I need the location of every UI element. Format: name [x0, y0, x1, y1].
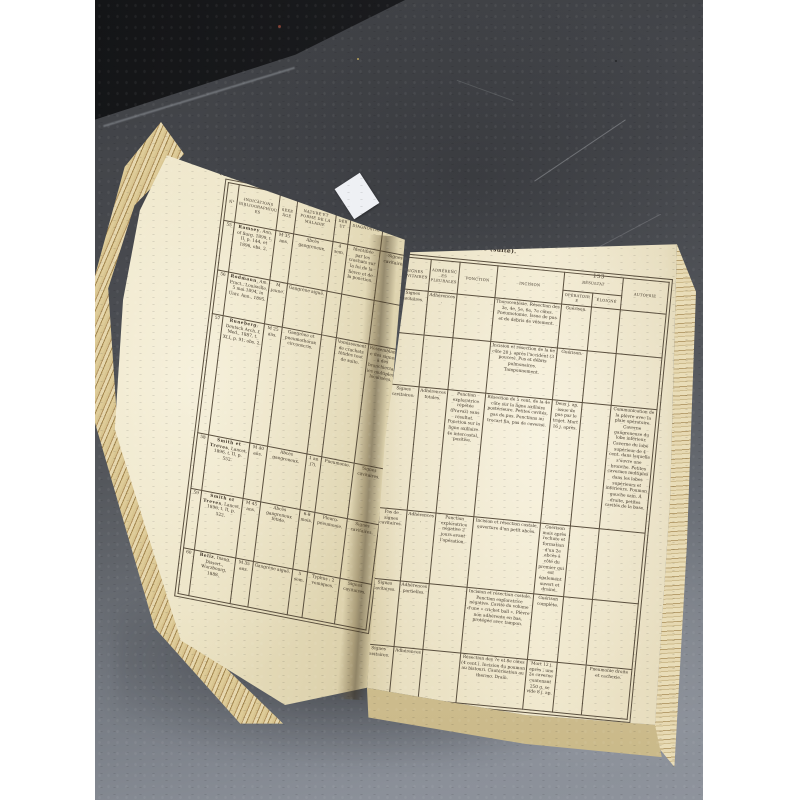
left-cell-biblio: Beliz, Inaug. Dissert., Wurzbourg, 1888.	[189, 550, 236, 604]
floor-speck	[615, 60, 617, 62]
right-cell-incision: Résection de 5 cent. de la 4e côte sur l…	[474, 393, 553, 523]
right-cell-incision: Résection des 7e et 8e côtes (4 cent.). …	[456, 653, 528, 709]
right-col-header: Adhérences pleurales	[428, 259, 461, 294]
floor-speck	[278, 25, 281, 28]
left-cell-biblio: Rodmann, Am. Pract., Louisville, 5 mai 1…	[224, 272, 271, 324]
right-page-title: Gangrène pulmonaire (suite).	[408, 238, 517, 255]
right-cell-autopsie	[611, 354, 662, 410]
right-cell-incision: Thoracentésie. Résection des 3e, 4e, 5e,…	[491, 298, 562, 348]
right-cell-ponction	[423, 584, 467, 653]
floor-scratch	[457, 80, 514, 101]
photo-frame: 152 Tableau X. N°Indications bibliograph…	[95, 0, 703, 800]
right-col-header: Signes cavitaires	[398, 257, 431, 292]
right-cell-adherences: Adhérences.	[389, 647, 423, 700]
left-cell-nature: Abcès gangreneux.	[260, 446, 306, 509]
right-cell-autopsie	[586, 600, 638, 670]
right-cell-resultat_operatoire: Guérison.	[557, 304, 591, 351]
right-cell-resultat_operatoire: Mort 12 j. après ; une 2e caverne conten…	[523, 660, 557, 713]
floor-speck	[357, 58, 359, 60]
right-table: Signes cavitairesAdhérences pleuralesPon…	[359, 256, 670, 720]
right-cell-resultat_eloigne	[552, 662, 586, 715]
case-author: Beliz	[199, 553, 214, 561]
right-cell-ponction	[453, 294, 495, 341]
right-cell-ponction	[418, 649, 460, 702]
right-col-header: Autopsie	[621, 278, 670, 314]
right-page-group: Gangrène pulmonaire (suite). 153 Signes …	[345, 140, 703, 800]
right-cell-incision: Incision et résection costale, ouverture…	[467, 517, 541, 594]
right-cell-ponction	[448, 338, 490, 393]
case-author: Ramsey	[238, 225, 260, 234]
photo-of-open-book: 152 Tableau X. N°Indications bibliograph…	[0, 0, 800, 800]
left-cell-biblio: Ramsey, Ann. of Surg. 1899, t. II, p. 14…	[229, 222, 276, 280]
right-cell-signes: Signes cavitaires.	[394, 288, 428, 335]
right-cell-incision: Incision et résection de la 6e côte 20 j…	[486, 341, 558, 399]
case-author: Smith et Treves	[203, 494, 235, 507]
right-cell-autopsie	[593, 529, 645, 604]
case-author: Smith et Treves	[210, 438, 242, 451]
right-col-header: Ponction	[457, 262, 498, 297]
left-cell-nature: Gangrène aiguë.	[248, 561, 293, 614]
right-cell-signes: Signes cavitaires.	[359, 644, 393, 697]
left-cell-biblio: Smith et Treves, Lancet, 1896, t. II, p.…	[202, 435, 250, 499]
right-cell-adherences: Adhérences.	[424, 291, 458, 338]
page-number-left: 152	[218, 171, 231, 179]
right-cell-autopsie: Pneumonie droite et cachexie.	[582, 665, 632, 719]
right-cell-incision: Incision et résection costale. Ponction …	[461, 587, 534, 659]
right-cell-autopsie	[616, 310, 666, 358]
left-cell-nature: Gangrène aiguë.	[282, 283, 327, 334]
left-cell-biblio: Smith et Treves, Lancet, 1896, t. II, p.…	[195, 490, 244, 558]
left-cell-nature: Abcès gangreneux.	[287, 234, 333, 291]
right-cell-resultat_eloigne	[587, 307, 621, 354]
